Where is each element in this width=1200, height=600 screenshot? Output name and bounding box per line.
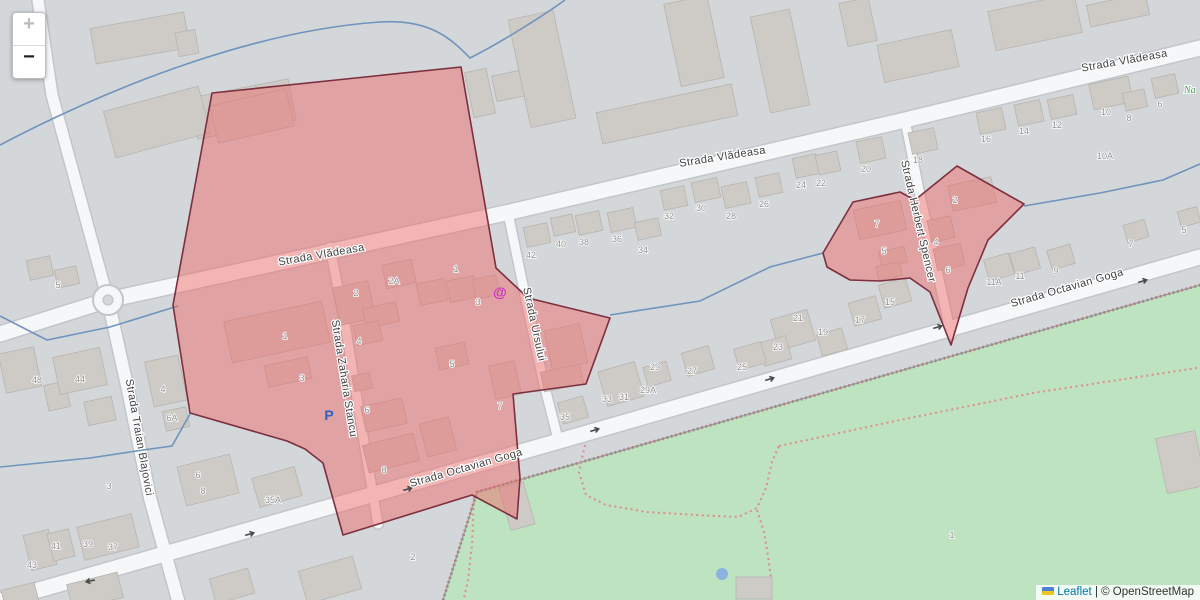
house-number: 2A bbox=[388, 276, 399, 286]
house-number: 6 bbox=[195, 470, 200, 480]
house-number: 2 bbox=[952, 195, 957, 205]
house-number: 37 bbox=[108, 542, 118, 552]
house-number: 44 bbox=[75, 374, 85, 384]
house-number: 17 bbox=[855, 315, 865, 325]
house-number: 40 bbox=[556, 239, 566, 249]
house-number: 11A bbox=[986, 277, 1001, 287]
house-number: 6A bbox=[166, 413, 177, 423]
house-number: 36 bbox=[612, 234, 622, 244]
house-number: 5 bbox=[55, 280, 60, 290]
house-number: 6 bbox=[364, 405, 369, 415]
house-number: 48 bbox=[32, 375, 42, 385]
zoom-in-button[interactable]: + bbox=[13, 13, 45, 46]
house-number: 33 bbox=[602, 394, 612, 404]
house-number: 19 bbox=[818, 327, 828, 337]
house-number: 43 bbox=[27, 560, 37, 570]
house-number: 4 bbox=[933, 237, 938, 247]
house-number: 26 bbox=[759, 199, 769, 209]
house-number: 9 bbox=[1053, 266, 1058, 276]
house-number: 7 bbox=[874, 219, 879, 229]
house-number: 29A bbox=[640, 385, 656, 395]
house-number: 29 bbox=[650, 362, 660, 372]
house-number: 4 bbox=[356, 336, 361, 346]
house-number: 18 bbox=[913, 155, 923, 165]
osm-attribution-text: © OpenStreetMap bbox=[1101, 586, 1194, 598]
house-number: 6 bbox=[945, 265, 950, 275]
house-number: 8 bbox=[1126, 113, 1131, 123]
house-number: 8 bbox=[381, 465, 386, 475]
house-number: 35 bbox=[560, 412, 570, 422]
house-number: 21 bbox=[793, 313, 803, 323]
house-number: 7 bbox=[1128, 239, 1133, 249]
house-number: 20 bbox=[861, 164, 871, 174]
map-svg: Strada VlădeasaStrada VlădeasaStrada Vlă… bbox=[0, 0, 1200, 600]
house-number: 41 bbox=[51, 541, 61, 551]
pond bbox=[716, 568, 728, 580]
house-number: 39 bbox=[83, 539, 93, 549]
house-number: 38 bbox=[579, 237, 589, 247]
roundabout bbox=[93, 285, 123, 315]
house-number: 3 bbox=[475, 297, 480, 307]
house-number: 11 bbox=[1015, 271, 1024, 281]
house-number: 5 bbox=[881, 246, 886, 256]
internet-cafe-icon: @ bbox=[493, 284, 507, 300]
house-number: 8 bbox=[200, 486, 205, 496]
building bbox=[84, 396, 116, 425]
house-number: 42 bbox=[526, 250, 536, 260]
house-number: 6 bbox=[1157, 99, 1162, 109]
building bbox=[815, 151, 841, 175]
house-number: 12 bbox=[1052, 120, 1062, 130]
house-number: 34 bbox=[638, 245, 648, 255]
ukraine-flag-icon bbox=[1042, 587, 1054, 595]
house-number: 10 bbox=[1101, 107, 1111, 117]
building bbox=[175, 29, 199, 56]
house-number: 35A bbox=[265, 495, 281, 505]
house-number: 30 bbox=[696, 203, 706, 213]
house-number: 4 bbox=[160, 384, 165, 394]
house-number: 3 bbox=[299, 373, 304, 383]
house-number: 15 bbox=[885, 297, 895, 307]
house-number: 22 bbox=[816, 178, 826, 188]
leaflet-link[interactable]: Leaflet bbox=[1057, 586, 1092, 598]
attribution: Leaflet | © OpenStreetMap bbox=[1036, 585, 1200, 600]
house-number: 10A bbox=[1097, 151, 1113, 161]
house-number: 5 bbox=[449, 359, 454, 369]
house-number: 25 bbox=[737, 362, 747, 372]
building bbox=[736, 577, 772, 599]
house-number: 24 bbox=[796, 180, 806, 190]
house-number: 2 bbox=[353, 288, 358, 298]
house-number: 27 bbox=[687, 366, 697, 376]
park-name-label: Na bbox=[1183, 85, 1196, 96]
house-number: 14 bbox=[1019, 126, 1029, 136]
house-number: 5 bbox=[1181, 225, 1186, 235]
zoom-control: + − bbox=[12, 12, 46, 79]
house-number: 1 bbox=[453, 264, 458, 274]
zoom-out-button[interactable]: − bbox=[13, 46, 45, 78]
house-number: 7 bbox=[497, 401, 502, 411]
map-canvas[interactable]: Strada VlădeasaStrada VlădeasaStrada Vlă… bbox=[0, 0, 1200, 600]
parking-icon: P bbox=[324, 407, 333, 423]
house-number: 2 bbox=[410, 552, 415, 562]
house-number: 16 bbox=[981, 134, 991, 144]
house-number: 32 bbox=[664, 211, 674, 221]
house-number: 28 bbox=[726, 211, 736, 221]
house-number: 31 bbox=[619, 392, 629, 402]
house-number: 1 bbox=[282, 331, 287, 341]
house-number: 23 bbox=[773, 342, 783, 352]
house-number: 3 bbox=[106, 481, 111, 491]
house-number: 1 bbox=[949, 530, 954, 540]
